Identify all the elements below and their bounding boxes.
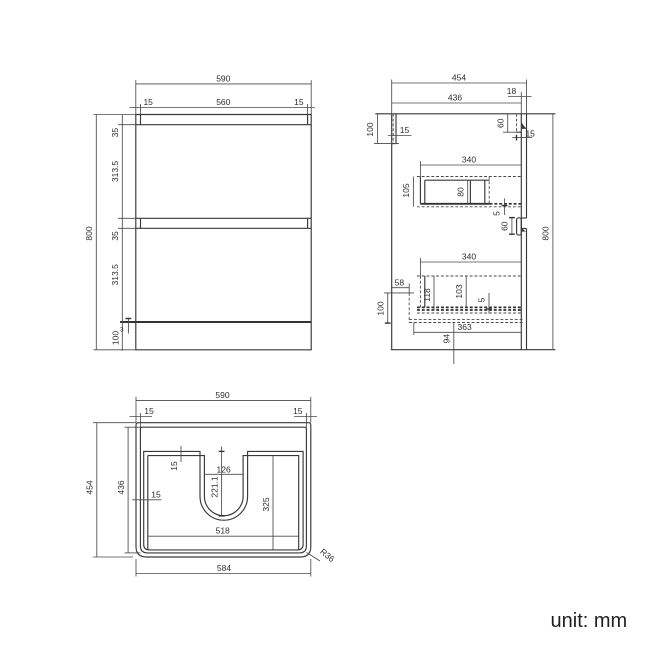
svg-text:363: 363 xyxy=(458,322,472,332)
svg-text:unit: mm: unit: mm xyxy=(551,610,628,632)
svg-text:454: 454 xyxy=(452,72,466,82)
svg-text:35: 35 xyxy=(110,231,120,241)
svg-text:94: 94 xyxy=(442,334,452,344)
svg-text:436: 436 xyxy=(116,480,126,494)
svg-text:100: 100 xyxy=(376,301,386,315)
svg-text:100: 100 xyxy=(365,122,375,136)
svg-text:100: 100 xyxy=(110,331,120,345)
svg-text:436: 436 xyxy=(448,92,462,102)
svg-text:60: 60 xyxy=(500,221,510,231)
svg-text:15: 15 xyxy=(151,489,161,499)
svg-text:118: 118 xyxy=(422,288,432,302)
svg-text:5: 5 xyxy=(492,211,502,216)
svg-text:800: 800 xyxy=(84,226,94,240)
svg-text:590: 590 xyxy=(215,390,229,400)
svg-text:518: 518 xyxy=(216,526,230,536)
svg-text:590: 590 xyxy=(216,73,230,83)
svg-text:15: 15 xyxy=(294,97,304,107)
svg-text:340: 340 xyxy=(462,155,476,165)
svg-text:15: 15 xyxy=(400,125,410,135)
svg-text:313.5: 313.5 xyxy=(110,161,120,183)
svg-text:15: 15 xyxy=(293,406,303,416)
svg-text:313.5: 313.5 xyxy=(110,264,120,286)
svg-text:5: 5 xyxy=(477,297,487,302)
svg-text:325: 325 xyxy=(261,497,271,511)
svg-text:15: 15 xyxy=(143,97,153,107)
svg-text:58: 58 xyxy=(395,277,405,287)
svg-text:560: 560 xyxy=(216,97,230,107)
svg-text:584: 584 xyxy=(217,563,231,573)
svg-text:105: 105 xyxy=(401,183,411,197)
svg-text:126: 126 xyxy=(217,464,231,474)
svg-text:80: 80 xyxy=(456,187,466,197)
svg-text:800: 800 xyxy=(541,226,551,240)
svg-text:18: 18 xyxy=(507,86,517,96)
svg-text:15: 15 xyxy=(525,128,535,138)
svg-text:340: 340 xyxy=(462,252,476,262)
svg-text:15: 15 xyxy=(144,406,154,416)
svg-text:103: 103 xyxy=(454,284,464,298)
svg-text:221.1: 221.1 xyxy=(209,476,219,498)
svg-text:60: 60 xyxy=(495,118,505,128)
svg-text:15: 15 xyxy=(169,461,179,471)
svg-text:454: 454 xyxy=(85,480,95,494)
svg-text:35: 35 xyxy=(110,128,120,138)
